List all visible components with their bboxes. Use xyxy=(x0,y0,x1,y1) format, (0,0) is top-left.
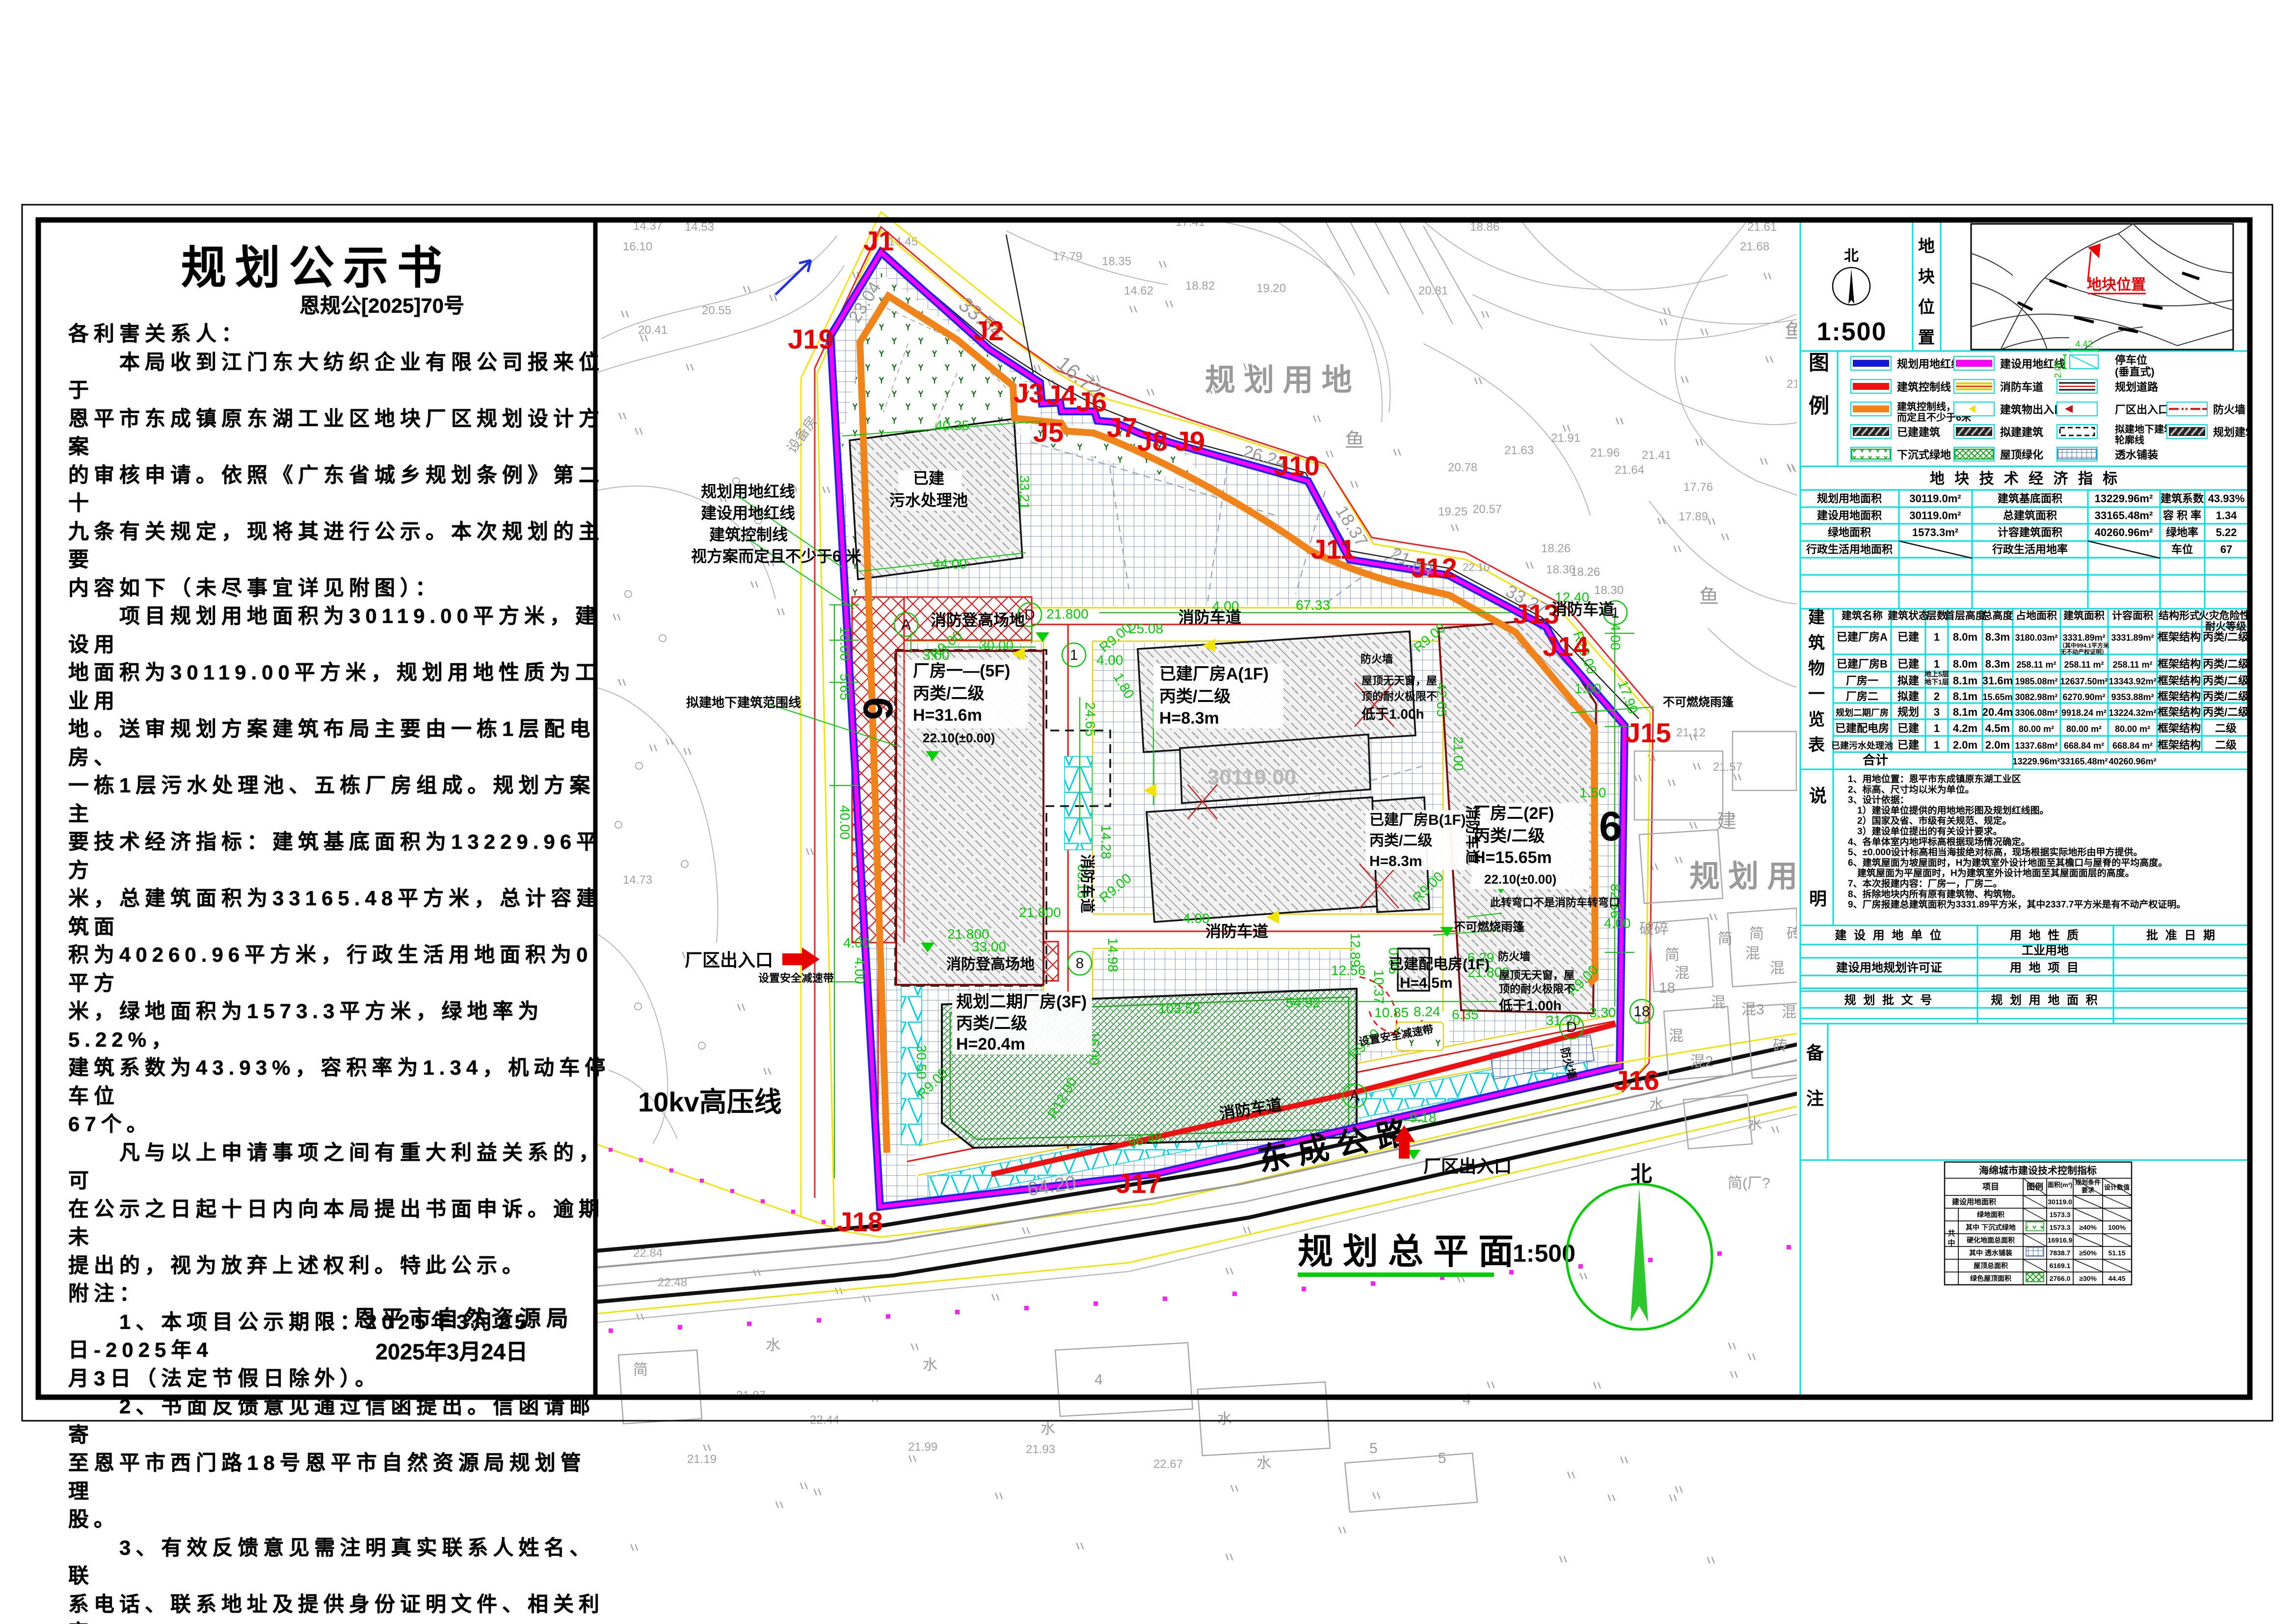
svg-text:40260.96m²: 40260.96m² xyxy=(2095,526,2153,539)
svg-text:混: 混 xyxy=(1770,960,1785,976)
svg-text:10kv高压线: 10kv高压线 xyxy=(638,1086,782,1117)
svg-text:5、±0.000设计标高相当海拔绝对标高，现场根据实际地形由: 5、±0.000设计标高相当海拔绝对标高，现场根据实际地形由甲方提供。 xyxy=(1848,846,2143,858)
svg-text:3306.08m²: 3306.08m² xyxy=(2015,708,2057,718)
svg-text:顶的耐火极限不: 顶的耐火极限不 xyxy=(1362,690,1437,703)
svg-text:水: 水 xyxy=(1041,1421,1055,1437)
svg-text:拟建建筑: 拟建建筑 xyxy=(2000,426,2043,438)
svg-text:4.42: 4.42 xyxy=(2075,339,2092,349)
svg-text:总建筑面积: 总建筑面积 xyxy=(2003,510,2057,522)
svg-text:A: A xyxy=(1350,1088,1360,1104)
svg-text:21.800: 21.800 xyxy=(1019,905,1061,920)
svg-text:硬化地面总面积: 硬化地面总面积 xyxy=(1967,1236,2015,1244)
svg-text:建筑控制线: 建筑控制线 xyxy=(1897,381,1951,393)
svg-text:20.81: 20.81 xyxy=(1418,284,1448,298)
svg-text:总高度: 总高度 xyxy=(1982,610,2013,622)
svg-text:12.89: 12.89 xyxy=(1348,933,1363,967)
svg-text:丙类/二级: 丙类/二级 xyxy=(1159,687,1230,706)
svg-text:J10: J10 xyxy=(1274,450,1319,481)
svg-text:18.26: 18.26 xyxy=(1541,542,1571,555)
svg-text:用 地 性 质: 用 地 性 质 xyxy=(2010,929,2081,942)
svg-text:共: 共 xyxy=(1948,1229,1955,1238)
svg-text:简(厂?: 简(厂? xyxy=(1728,1175,1770,1191)
svg-text:屋顶总面积: 屋顶总面积 xyxy=(1974,1262,2008,1270)
svg-text:J12: J12 xyxy=(1411,552,1457,583)
svg-text:3331.89m²: 3331.89m² xyxy=(2062,633,2105,643)
svg-text:14.62: 14.62 xyxy=(1124,284,1153,298)
svg-text:6270.90m²: 6270.90m² xyxy=(2062,692,2105,702)
svg-text:21.93: 21.93 xyxy=(1026,1443,1055,1456)
svg-text:建设用地面积: 建设用地面积 xyxy=(1817,510,1882,522)
svg-text:7838.7: 7838.7 xyxy=(2050,1249,2071,1257)
svg-text:规 划 总 平 面: 规 划 总 平 面 xyxy=(1298,1232,1514,1272)
svg-text:5.22: 5.22 xyxy=(2216,526,2237,539)
svg-text:20.55: 20.55 xyxy=(702,304,731,317)
svg-text:简: 简 xyxy=(1665,947,1680,963)
svg-text:1573.3: 1573.3 xyxy=(2050,1211,2071,1218)
svg-text:丙类/二级: 丙类/二级 xyxy=(913,684,984,703)
svg-text:合计: 合计 xyxy=(1863,753,1888,767)
svg-text:厂房一: 厂房一 xyxy=(1846,675,1878,687)
svg-text:4: 4 xyxy=(1095,1372,1103,1388)
svg-text:9.18: 9.18 xyxy=(1410,1110,1437,1125)
svg-text:表: 表 xyxy=(1808,736,1825,755)
svg-text:22.67: 22.67 xyxy=(1153,1458,1183,1471)
svg-text:绿地面积: 绿地面积 xyxy=(1828,526,1871,539)
svg-text:2、标高、尺寸均以米为单位。: 2、标高、尺寸均以米为单位。 xyxy=(1848,784,1975,795)
svg-text:21.12: 21.12 xyxy=(1676,726,1706,739)
svg-text:51.15: 51.15 xyxy=(2108,1249,2125,1257)
svg-text:H=31.6m: H=31.6m xyxy=(913,706,982,725)
svg-text:J15: J15 xyxy=(1625,717,1671,748)
svg-text:1573.3m²: 1573.3m² xyxy=(1912,526,1958,539)
svg-text:1337.68m²: 1337.68m² xyxy=(2015,741,2057,751)
svg-text:丙类/二级: 丙类/二级 xyxy=(2203,690,2249,703)
svg-text:30119.00: 30119.00 xyxy=(1207,765,1296,789)
svg-text:1: 1 xyxy=(1934,631,1940,643)
svg-text:15.65m: 15.65m xyxy=(1982,692,2012,702)
svg-text:地块位置: 地块位置 xyxy=(2087,276,2146,293)
svg-text:计容面积: 计容面积 xyxy=(2112,610,2153,622)
svg-text:21.96: 21.96 xyxy=(1590,446,1620,460)
svg-text:16916.9: 16916.9 xyxy=(2048,1236,2073,1244)
svg-text:规划道路: 规划道路 xyxy=(2115,381,2159,393)
svg-text:低于1.00h: 低于1.00h xyxy=(1498,998,1562,1013)
svg-text:此转弯口不是消防车转弯口: 此转弯口不是消防车转弯口 xyxy=(1490,896,1620,909)
svg-text:已建: 已建 xyxy=(913,469,944,487)
svg-text:建筑屋面为平屋面时，H为建筑室外设计地面至其屋面面层的高度。: 建筑屋面为平屋面时，H为建筑室外设计地面至其屋面面层的高度。 xyxy=(1848,867,2135,879)
svg-text:砖: 砖 xyxy=(1773,1038,1788,1054)
svg-text:建筑物出入口: 建筑物出入口 xyxy=(2000,404,2065,416)
svg-text:8.0m: 8.0m xyxy=(1953,658,1977,670)
svg-text:简: 简 xyxy=(1718,931,1733,947)
svg-text:17.79: 17.79 xyxy=(1053,250,1082,263)
svg-text:8.1m: 8.1m xyxy=(1953,675,1977,687)
svg-text:消防车道: 消防车道 xyxy=(1551,600,1614,618)
svg-text:规划二期厂房(3F): 规划二期厂房(3F) xyxy=(956,993,1087,1011)
svg-text:21.68: 21.68 xyxy=(1740,240,1769,253)
svg-text:14.53: 14.53 xyxy=(685,220,714,234)
svg-text:H=8.3m: H=8.3m xyxy=(1369,853,1422,869)
svg-text:33165.48m²: 33165.48m² xyxy=(2095,510,2153,522)
svg-text:9918.24 m²: 9918.24 m² xyxy=(2061,708,2107,718)
svg-text:海绵城市建设技术控制指标: 海绵城市建设技术控制指标 xyxy=(1979,1164,2097,1176)
svg-text:4.00: 4.00 xyxy=(843,935,870,950)
svg-text:混: 混 xyxy=(1711,995,1726,1011)
svg-text:13229.96m²: 13229.96m² xyxy=(2095,492,2153,505)
svg-text:20.4m: 20.4m xyxy=(1982,706,2013,718)
svg-text:水: 水 xyxy=(766,1337,780,1353)
svg-text:工业用地: 工业用地 xyxy=(2022,944,2069,957)
svg-text:首层高度: 首层高度 xyxy=(1945,610,1986,622)
svg-text:17.89: 17.89 xyxy=(1679,510,1708,523)
svg-text:低于1.00h: 低于1.00h xyxy=(1361,706,1424,722)
svg-text:21.64: 21.64 xyxy=(1615,463,1644,477)
svg-text:屋顶无天窗，屋: 屋顶无天窗，屋 xyxy=(1362,675,1437,687)
svg-text:40.35: 40.35 xyxy=(935,418,969,433)
svg-text:规划用地红线: 规划用地红线 xyxy=(701,483,795,500)
svg-text:H=20.4m: H=20.4m xyxy=(956,1035,1025,1054)
svg-text:30119.0: 30119.0 xyxy=(2048,1198,2072,1206)
svg-text:J1: J1 xyxy=(863,225,894,256)
svg-text:4.5m: 4.5m xyxy=(1985,722,2010,734)
svg-text:防火墙: 防火墙 xyxy=(1361,653,1393,665)
svg-text:8.3m: 8.3m xyxy=(1985,658,2010,670)
svg-text:北: 北 xyxy=(1844,248,1859,264)
svg-text:3: 3 xyxy=(1934,706,1940,718)
svg-text:例: 例 xyxy=(1809,394,1829,417)
svg-text:44.00: 44.00 xyxy=(933,556,967,571)
svg-text:拟建地下建筑: 拟建地下建筑 xyxy=(2115,423,2174,435)
svg-text:21.800: 21.800 xyxy=(1046,606,1089,622)
svg-text:规划用地红线: 规划用地红线 xyxy=(1897,358,1962,370)
svg-text:80.00 m²: 80.00 m² xyxy=(2115,724,2150,734)
svg-text:2.0m: 2.0m xyxy=(1985,739,2010,751)
svg-text:丙类/二级: 丙类/二级 xyxy=(2203,631,2249,643)
svg-text:鱼: 鱼 xyxy=(1699,586,1719,607)
svg-text:21.63: 21.63 xyxy=(1504,444,1534,457)
svg-text:建筑状态: 建筑状态 xyxy=(1888,610,1929,622)
svg-text:J2: J2 xyxy=(973,315,1004,346)
svg-text:水: 水 xyxy=(1649,1097,1664,1113)
svg-text:2: 2 xyxy=(1934,690,1940,703)
svg-text:已建: 已建 xyxy=(1897,631,1919,643)
svg-text:建设用地红线: 建设用地红线 xyxy=(701,504,795,522)
svg-text:厂区出入口: 厂区出入口 xyxy=(2115,404,2169,416)
svg-text:30119.0m²: 30119.0m² xyxy=(1909,510,1961,522)
svg-text:建筑基底面积: 建筑基底面积 xyxy=(1998,492,2062,505)
svg-text:厂区出入口: 厂区出入口 xyxy=(685,950,773,970)
svg-text:透水铺装: 透水铺装 xyxy=(2115,449,2158,461)
svg-text:规划二期厂房: 规划二期厂房 xyxy=(1836,707,1889,718)
svg-text:水: 水 xyxy=(923,1357,937,1373)
svg-text:已建: 已建 xyxy=(1897,658,1919,670)
svg-text:厂房二(2F): 厂房二(2F) xyxy=(1473,804,1554,823)
svg-text:10.00: 10.00 xyxy=(837,626,853,661)
svg-text:19.20: 19.20 xyxy=(1256,282,1286,295)
svg-text:668.84 m²: 668.84 m² xyxy=(2064,741,2104,751)
svg-text:规划用地面积: 规划用地面积 xyxy=(1817,492,1882,505)
svg-text:混: 混 xyxy=(1669,1028,1683,1044)
svg-text:8: 8 xyxy=(1076,955,1084,972)
svg-text:67: 67 xyxy=(2220,543,2232,556)
svg-text:一: 一 xyxy=(1808,685,1825,704)
svg-text:J14: J14 xyxy=(1543,631,1588,662)
svg-text:览: 览 xyxy=(1808,710,1825,729)
svg-text:14.73: 14.73 xyxy=(623,873,652,887)
svg-text:(垂直式): (垂直式) xyxy=(2115,366,2155,378)
svg-text:≥40%: ≥40% xyxy=(2079,1223,2097,1231)
svg-text:18.26: 18.26 xyxy=(1571,566,1600,579)
svg-text:2.0m: 2.0m xyxy=(1953,739,1977,751)
svg-text:21.00: 21.00 xyxy=(1451,736,1466,771)
svg-text:21.91: 21.91 xyxy=(1551,432,1580,445)
svg-text:火灾危险性/: 火灾危险性/ xyxy=(2199,610,2252,622)
svg-text:筑: 筑 xyxy=(1808,634,1825,652)
svg-text:规 划 用 地 面 积: 规 划 用 地 面 积 xyxy=(1991,994,2099,1007)
svg-text:用 地 项 目: 用 地 项 目 xyxy=(2010,961,2081,974)
svg-text:10.85: 10.85 xyxy=(1374,1005,1409,1020)
svg-text:项目: 项目 xyxy=(1982,1182,1999,1191)
svg-text:1: 1 xyxy=(1934,722,1940,734)
svg-text:消防车道: 消防车道 xyxy=(1205,922,1268,940)
svg-text:67.33: 67.33 xyxy=(1296,597,1330,613)
svg-text:厂房一—(5F): 厂房一—(5F) xyxy=(913,662,1010,680)
svg-text:容 积 率: 容 积 率 xyxy=(2163,510,2201,522)
svg-text:消防车道: 消防车道 xyxy=(1464,805,1481,864)
svg-text:1）建设单位提供的用地地形图及规划红线图。: 1）建设单位提供的用地地形图及规划红线图。 xyxy=(1848,805,2049,816)
svg-text:1.50: 1.50 xyxy=(1579,785,1606,800)
svg-text:8.24: 8.24 xyxy=(1414,1004,1441,1019)
svg-text:A: A xyxy=(901,617,911,633)
svg-text:框架结构: 框架结构 xyxy=(2158,631,2201,643)
svg-text:1: 1 xyxy=(1934,739,1940,751)
svg-text:J19: J19 xyxy=(788,324,833,354)
svg-text:厂区出入口: 厂区出入口 xyxy=(1423,1156,1512,1176)
svg-text:车位: 车位 xyxy=(2171,543,2193,556)
svg-text:水: 水 xyxy=(1747,1116,1762,1133)
svg-text:2766.0: 2766.0 xyxy=(2050,1274,2071,1282)
svg-text:668.84 m²: 668.84 m² xyxy=(2112,741,2153,751)
svg-text:水: 水 xyxy=(1217,1411,1232,1427)
svg-text:17.41: 17.41 xyxy=(1175,216,1205,229)
svg-text:14.28: 14.28 xyxy=(1098,825,1114,859)
svg-text:18.86: 18.86 xyxy=(1470,220,1499,234)
svg-text:21.99: 21.99 xyxy=(908,1440,937,1454)
svg-text:地下1层: 地下1层 xyxy=(1924,678,1949,686)
svg-text:3.30: 3.30 xyxy=(1589,1005,1616,1020)
svg-text:破碎: 破碎 xyxy=(1639,921,1669,937)
svg-text:地 块 技 术 经 济 指 标: 地 块 技 术 经 济 指 标 xyxy=(1930,470,2120,487)
svg-text:14.98: 14.98 xyxy=(1105,938,1121,972)
svg-text:已建污水处理池: 已建污水处理池 xyxy=(1831,740,1893,751)
svg-text:注: 注 xyxy=(1806,1088,1824,1109)
svg-text:H=4.5m: H=4.5m xyxy=(1400,975,1453,991)
svg-text:鱼: 鱼 xyxy=(1345,430,1364,451)
svg-text:水: 水 xyxy=(1256,1455,1271,1471)
svg-text:13224.32m²: 13224.32m² xyxy=(2109,708,2156,718)
svg-text:J8: J8 xyxy=(1137,426,1168,457)
svg-text:D: D xyxy=(1566,1019,1577,1035)
svg-text:16.10: 16.10 xyxy=(623,240,652,253)
svg-text:规 划 批 文 号: 规 划 批 文 号 xyxy=(1844,993,1934,1007)
svg-text:8、拆除地块内所有原有建筑物、构筑物。: 8、拆除地块内所有原有建筑物、构筑物。 xyxy=(1848,888,2021,899)
svg-text:J7: J7 xyxy=(1107,412,1137,443)
svg-text:21.61: 21.61 xyxy=(1747,220,1777,234)
svg-text:已建建筑: 已建建筑 xyxy=(1897,426,1940,438)
svg-text:绿地面积: 绿地面积 xyxy=(1977,1211,2004,1218)
svg-text:明: 明 xyxy=(1809,889,1827,909)
svg-text:丙类/二级: 丙类/二级 xyxy=(1369,833,1432,849)
svg-text:21.57: 21.57 xyxy=(1713,760,1742,774)
svg-text:二级: 二级 xyxy=(2215,722,2237,734)
svg-text:1.34: 1.34 xyxy=(2216,510,2238,522)
svg-text:已建厂房B(1F): 已建厂房B(1F) xyxy=(1369,812,1466,828)
svg-text:消防车道: 消防车道 xyxy=(1178,608,1241,626)
svg-text:9353.88m²: 9353.88m² xyxy=(2111,692,2154,702)
svg-text:21.97: 21.97 xyxy=(736,1389,766,1402)
svg-text:已建: 已建 xyxy=(1897,722,1919,734)
svg-text:位: 位 xyxy=(1918,298,1935,317)
svg-text:建筑系数: 建筑系数 xyxy=(2161,492,2204,505)
svg-text:图: 图 xyxy=(1809,351,1829,374)
svg-text:已建厂房A: 已建厂房A xyxy=(1837,631,1888,643)
svg-text:其中 透水铺装: 其中 透水铺装 xyxy=(1969,1249,2013,1257)
svg-text:二级: 二级 xyxy=(2215,739,2237,751)
svg-text:20.78: 20.78 xyxy=(1448,461,1477,474)
svg-text:1985.08m²: 1985.08m² xyxy=(2015,677,2057,686)
svg-text:9、厂房报建总建筑面积为3331.89平方米，其中2337.: 9、厂房报建总建筑面积为3331.89平方米，其中2337.7平方米是有不动产权… xyxy=(1848,899,2186,910)
svg-text:视方案而定且不少于6 米: 视方案而定且不少于6 米 xyxy=(691,547,861,565)
svg-text:18.35: 18.35 xyxy=(1102,255,1131,268)
svg-text:12637.50m²: 12637.50m² xyxy=(2060,677,2108,686)
svg-text:物: 物 xyxy=(1808,659,1825,678)
svg-text:80.00 m²: 80.00 m² xyxy=(2019,724,2054,734)
svg-text:6169.1: 6169.1 xyxy=(2050,1262,2071,1270)
svg-text:混2: 混2 xyxy=(1690,1054,1713,1070)
svg-text:1:500: 1:500 xyxy=(1817,318,1887,346)
svg-text:备: 备 xyxy=(1806,1043,1824,1063)
svg-text:18.30: 18.30 xyxy=(1594,584,1624,597)
svg-text:13229.96m²: 13229.96m² xyxy=(2012,757,2060,766)
svg-text:已建配电房(1F): 已建配电房(1F) xyxy=(1389,956,1490,973)
svg-text:设计数值: 设计数值 xyxy=(2104,1184,2130,1191)
svg-text:1.00: 1.00 xyxy=(1575,681,1602,696)
svg-text:说: 说 xyxy=(1809,785,1827,806)
svg-text:30.00: 30.00 xyxy=(979,638,1014,653)
svg-text:14.37: 14.37 xyxy=(633,219,663,233)
svg-text:防火墙: 防火墙 xyxy=(1498,950,1530,963)
svg-text:103.52: 103.52 xyxy=(1158,1001,1201,1016)
svg-text:结构形式: 结构形式 xyxy=(2159,610,2200,622)
svg-text:258.11 m²: 258.11 m² xyxy=(2112,660,2152,670)
svg-text:消防车道: 消防车道 xyxy=(2000,381,2043,393)
svg-text:建 设 用 地 单 位: 建 设 用 地 单 位 xyxy=(1835,928,1943,942)
svg-text:40.00: 40.00 xyxy=(837,805,853,839)
svg-text:22.10(±0.00): 22.10(±0.00) xyxy=(1484,872,1556,887)
svg-text:顶的耐火极限不: 顶的耐火极限不 xyxy=(1499,983,1575,995)
svg-text:J16: J16 xyxy=(1613,1065,1659,1096)
svg-text:18: 18 xyxy=(1633,1003,1650,1020)
svg-text:100%: 100% xyxy=(2108,1223,2126,1231)
svg-text:建筑面积: 建筑面积 xyxy=(2063,610,2105,622)
svg-text:J18: J18 xyxy=(837,1206,882,1237)
svg-text:≥50%: ≥50% xyxy=(2079,1249,2097,1257)
svg-text:不可燃烧雨篷: 不可燃烧雨篷 xyxy=(1454,920,1525,934)
svg-text:建筑控制线: 建筑控制线 xyxy=(709,526,788,543)
svg-text:消防登高场地: 消防登高场地 xyxy=(931,611,1025,629)
svg-text:绿地率: 绿地率 xyxy=(2166,526,2198,539)
svg-text:污水处理池: 污水处理池 xyxy=(889,491,968,509)
svg-text:21.41: 21.41 xyxy=(1642,449,1671,462)
svg-text:拟建地下建筑范围线: 拟建地下建筑范围线 xyxy=(686,695,801,710)
svg-text:H=15.65m: H=15.65m xyxy=(1473,848,1552,867)
svg-text:北: 北 xyxy=(1630,1162,1652,1186)
svg-text:消防登高场地: 消防登高场地 xyxy=(946,956,1035,973)
svg-text:1573.3: 1573.3 xyxy=(2050,1223,2071,1231)
svg-text:占地面积: 占地面积 xyxy=(2016,610,2057,622)
svg-text:丙类/二级: 丙类/二级 xyxy=(2203,675,2249,687)
svg-text:2.08: 2.08 xyxy=(2053,361,2063,378)
svg-text:设置安全减速带: 设置安全减速带 xyxy=(758,972,834,984)
svg-text:19.25: 19.25 xyxy=(1438,505,1468,518)
svg-text:下沉式绿地: 下沉式绿地 xyxy=(1897,449,1951,461)
svg-text:20.57: 20.57 xyxy=(1472,503,1502,516)
svg-text:屋顶无天窗，屋: 屋顶无天窗，屋 xyxy=(1499,969,1575,981)
svg-text:8.1m: 8.1m xyxy=(1953,706,1977,718)
svg-text:33.00: 33.00 xyxy=(972,939,1006,954)
svg-text:4.2m: 4.2m xyxy=(1953,722,1977,734)
svg-text:31.6m: 31.6m xyxy=(1982,675,2013,687)
svg-text:框架结构: 框架结构 xyxy=(2158,706,2201,718)
svg-text:框架结构: 框架结构 xyxy=(2158,739,2201,751)
svg-text:J3: J3 xyxy=(1014,378,1044,408)
svg-text:地: 地 xyxy=(1918,237,1935,256)
svg-text:6: 6 xyxy=(1599,803,1622,849)
svg-text:混: 混 xyxy=(1675,965,1689,981)
svg-text:框架结构: 框架结构 xyxy=(2158,722,2201,734)
svg-text:D: D xyxy=(1024,607,1035,623)
svg-text:5: 5 xyxy=(1369,1440,1378,1457)
svg-text:中: 中 xyxy=(1948,1239,1955,1247)
svg-text:无不动产权证明）: 无不动产权证明） xyxy=(2060,648,2108,655)
svg-text:33165.48m²: 33165.48m² xyxy=(2060,757,2108,766)
svg-text:17.76: 17.76 xyxy=(1683,481,1713,494)
svg-text:建: 建 xyxy=(1717,811,1736,832)
svg-text:面积(m²): 面积(m²) xyxy=(2048,1181,2073,1189)
svg-text:3331.89m²: 3331.89m² xyxy=(2111,633,2154,643)
svg-text:屋顶绿化: 屋顶绿化 xyxy=(2000,449,2043,461)
svg-text:规划条件: 规划条件 xyxy=(2075,1179,2101,1186)
svg-text:规划建筑: 规划建筑 xyxy=(2213,426,2252,438)
svg-text:框架结构: 框架结构 xyxy=(2158,690,2201,703)
svg-text:8.1m: 8.1m xyxy=(1953,690,1977,703)
svg-text:30119.0m²: 30119.0m² xyxy=(1909,492,1961,505)
svg-text:22.10: 22.10 xyxy=(1463,561,1490,573)
svg-text:J4: J4 xyxy=(1046,379,1076,410)
svg-text:已建配电房: 已建配电房 xyxy=(1835,722,1889,734)
svg-text:建设用地规划许可证: 建设用地规划许可证 xyxy=(1836,961,1942,974)
svg-text:6: 6 xyxy=(855,697,901,720)
svg-text:消防车道: 消防车道 xyxy=(1079,854,1095,913)
svg-text:22.44: 22.44 xyxy=(810,1413,839,1427)
svg-text:停车位: 停车位 xyxy=(2115,354,2147,366)
svg-text:规 划 用 地: 规 划 用 地 xyxy=(1205,363,1352,397)
svg-text:计容建筑面积: 计容建筑面积 xyxy=(1998,526,2062,539)
svg-text:43.93%: 43.93% xyxy=(2208,492,2245,505)
svg-text:置: 置 xyxy=(1918,328,1935,347)
svg-text:22.10(±0.00): 22.10(±0.00) xyxy=(923,731,995,745)
svg-text:6.35: 6.35 xyxy=(1452,1007,1479,1022)
